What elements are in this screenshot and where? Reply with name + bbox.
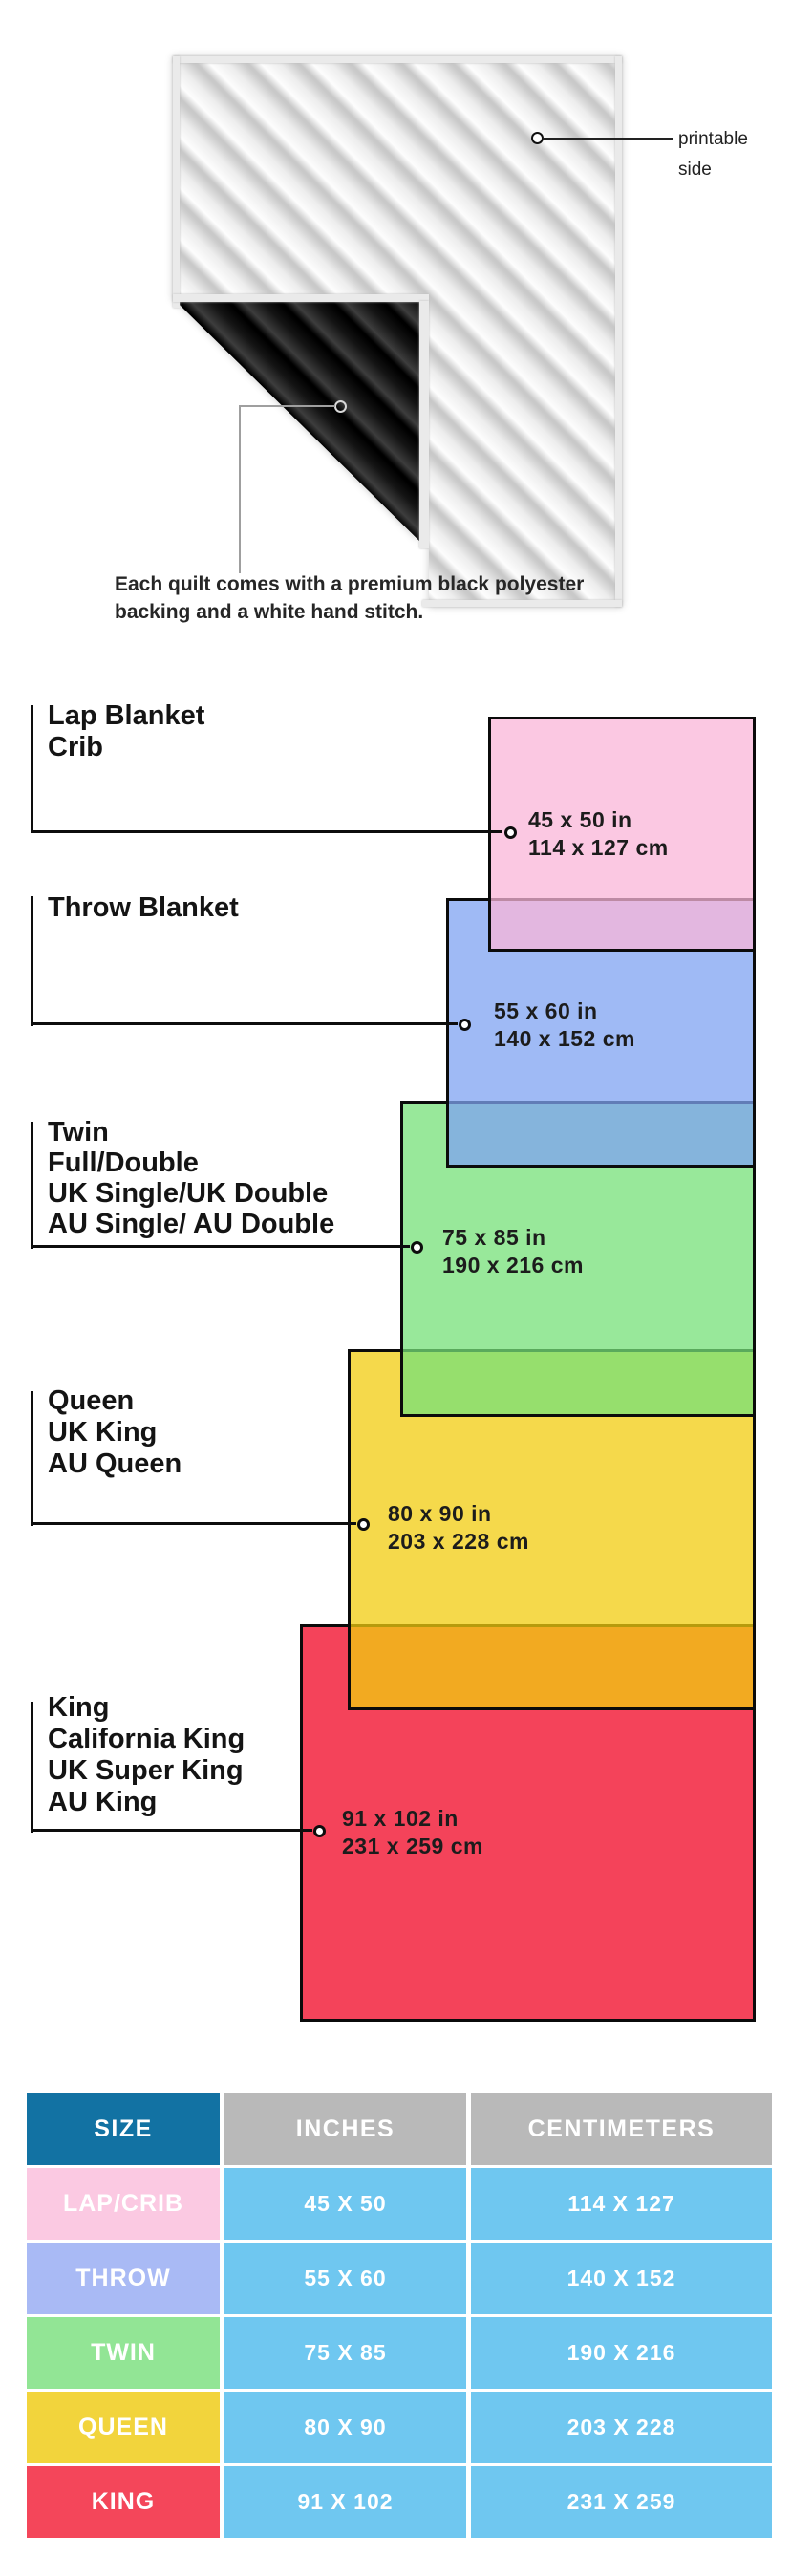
- heading-queen: Queen UK King AU Queen: [48, 1385, 182, 1480]
- connector-horizontal-twin: [31, 1245, 410, 1248]
- quilt-binding-fold-vertical: [419, 301, 429, 548]
- dimensions-lap: 45 x 50 in 114 x 127 cm: [528, 806, 669, 862]
- dimensions-throw-inches: 55 x 60 in: [494, 998, 635, 1025]
- quilt-caption-line1: Each quilt comes with a premium black po…: [115, 570, 584, 598]
- connector-vertical-twin: [31, 1122, 33, 1249]
- quilt-binding-left: [173, 56, 180, 308]
- connector-horizontal-king: [31, 1829, 312, 1832]
- table-row-throw-label: THROW: [27, 2243, 220, 2314]
- connector-vertical-king: [31, 1702, 33, 1833]
- table-row-twin-label: TWIN: [27, 2317, 220, 2389]
- table-row-queen-centimeters: 203 X 228: [471, 2392, 772, 2463]
- dimensions-lap-inches: 45 x 50 in: [528, 806, 669, 834]
- dimensions-queen-inches: 80 x 90 in: [388, 1500, 529, 1528]
- table-row-twin-centimeters: 190 X 216: [471, 2317, 772, 2389]
- quilt-binding-fold-horizontal: [173, 294, 429, 302]
- printable-side-label-line2: side: [678, 155, 748, 185]
- connector-horizontal-queen: [31, 1522, 356, 1525]
- table-row-queen-inches: 80 X 90: [224, 2392, 466, 2463]
- dimensions-king-cm: 231 x 259 cm: [342, 1833, 483, 1860]
- connector-vertical-throw: [31, 896, 33, 1026]
- size-table: SIZE INCHES CENTIMETERS LAP/CRIB 45 X 50…: [27, 2093, 772, 2538]
- dimensions-queen: 80 x 90 in 203 x 228 cm: [388, 1500, 529, 1556]
- dimensions-throw-cm: 140 x 152 cm: [494, 1025, 635, 1053]
- table-row-lap-label: LAP/CRIB: [27, 2168, 220, 2240]
- heading-king-line3: UK Super King: [48, 1755, 245, 1787]
- connector-horizontal-throw: [31, 1022, 458, 1025]
- heading-throw-line1: Throw Blanket: [48, 892, 239, 924]
- printable-side-callout-line: [543, 138, 673, 140]
- dimensions-twin: 75 x 85 in 190 x 216 cm: [442, 1224, 584, 1279]
- table-row-king-label: KING: [27, 2466, 220, 2538]
- table-row-throw-inches: 55 X 60: [224, 2243, 466, 2314]
- table-row-twin-inches: 75 X 85: [224, 2317, 466, 2389]
- heading-queen-line1: Queen: [48, 1385, 182, 1417]
- backing-marker-icon: [334, 400, 347, 413]
- heading-king-line4: AU King: [48, 1787, 245, 1818]
- table-row-king-inches: 91 X 102: [224, 2466, 466, 2538]
- heading-twin: Twin Full/Double UK Single/UK Double AU …: [48, 1117, 334, 1239]
- table-row-queen-label: QUEEN: [27, 2392, 220, 2463]
- heading-twin-line2: Full/Double: [48, 1148, 334, 1178]
- heading-twin-line1: Twin: [48, 1117, 334, 1148]
- backing-callout-line-horizontal: [240, 405, 335, 407]
- heading-king-line2: California King: [48, 1724, 245, 1755]
- dimensions-twin-inches: 75 x 85 in: [442, 1224, 584, 1252]
- dimensions-king: 91 x 102 in 231 x 259 cm: [342, 1805, 483, 1860]
- heading-twin-line3: UK Single/UK Double: [48, 1178, 334, 1209]
- heading-twin-line4: AU Single/ AU Double: [48, 1209, 334, 1239]
- table-header-centimeters: CENTIMETERS: [471, 2093, 772, 2165]
- connector-vertical-lap: [31, 705, 33, 833]
- table-row-lap-centimeters: 114 X 127: [471, 2168, 772, 2240]
- printable-side-label-line1: printable: [678, 124, 748, 155]
- backing-callout-line-vertical: [239, 405, 241, 573]
- marker-dot-queen-icon: [357, 1518, 370, 1531]
- dimensions-twin-cm: 190 x 216 cm: [442, 1252, 584, 1279]
- dimensions-throw: 55 x 60 in 140 x 152 cm: [494, 998, 635, 1053]
- dimensions-lap-cm: 114 x 127 cm: [528, 834, 669, 862]
- dimensions-queen-cm: 203 x 228 cm: [388, 1528, 529, 1556]
- marker-dot-king-icon: [313, 1825, 326, 1837]
- table-row-throw-centimeters: 140 X 152: [471, 2243, 772, 2314]
- marker-dot-lap-icon: [504, 826, 517, 839]
- connector-horizontal-lap: [31, 830, 502, 833]
- table-row-king-centimeters: 231 X 259: [471, 2466, 772, 2538]
- marker-dot-twin-icon: [411, 1241, 423, 1254]
- table-row-lap-inches: 45 X 50: [224, 2168, 466, 2240]
- connector-vertical-queen: [31, 1391, 33, 1526]
- quilt-binding-top: [173, 56, 622, 63]
- heading-lap-line2: Crib: [48, 732, 204, 763]
- quilt-caption-line2: backing and a white hand stitch.: [115, 598, 584, 626]
- heading-king-line1: King: [48, 1692, 245, 1724]
- heading-throw: Throw Blanket: [48, 892, 239, 924]
- table-header-inches: INCHES: [224, 2093, 466, 2165]
- heading-king: King California King UK Super King AU Ki…: [48, 1692, 245, 1818]
- table-header-size: SIZE: [27, 2093, 220, 2165]
- heading-lap-crib: Lap Blanket Crib: [48, 700, 204, 763]
- heading-queen-line3: AU Queen: [48, 1449, 182, 1480]
- quilt-caption: Each quilt comes with a premium black po…: [115, 570, 584, 626]
- printable-side-label: printable side: [678, 124, 748, 185]
- dimensions-king-inches: 91 x 102 in: [342, 1805, 483, 1833]
- heading-queen-line2: UK King: [48, 1417, 182, 1449]
- heading-lap-line1: Lap Blanket: [48, 700, 204, 732]
- marker-dot-throw-icon: [459, 1019, 471, 1031]
